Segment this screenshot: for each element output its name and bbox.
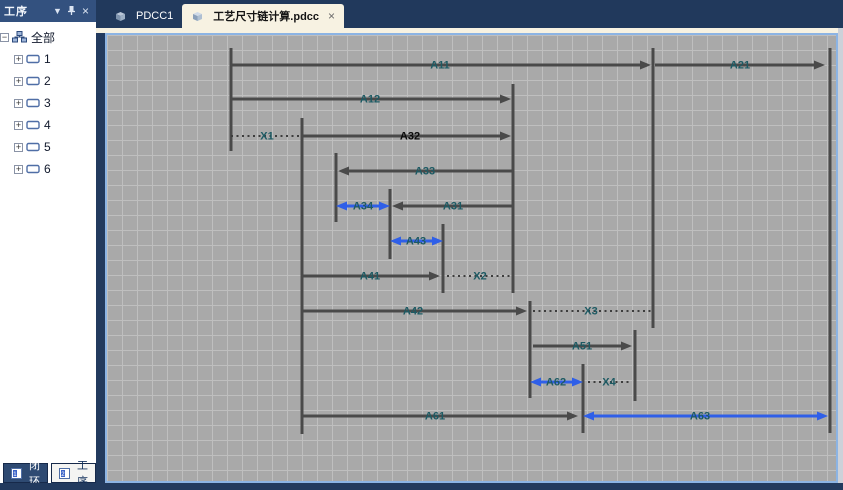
arrowhead-icon (516, 307, 527, 316)
dimension-label: A51 (572, 341, 592, 353)
dimension-label: A63 (690, 411, 710, 423)
operations-tree: −全部+1+2+3+4+5+6 (0, 26, 96, 180)
tab-label: PDCC1 (136, 10, 173, 22)
dimension-label: A33 (415, 166, 435, 178)
arrowhead-icon (338, 167, 349, 176)
close-panel-icon[interactable]: × (79, 4, 92, 18)
arrowhead-icon (390, 237, 401, 246)
operation-icon (26, 142, 40, 152)
dimension-chain-canvas[interactable]: A11A21A12X1A32A33A34A31A43A41X2A42X3A51A… (107, 35, 836, 481)
pin-icon[interactable] (65, 5, 78, 18)
expand-icon[interactable]: + (14, 121, 23, 130)
sidebar-bottom-tabs: 1 闭环 2 工序 (3, 463, 96, 483)
tree-item-label: 1 (44, 52, 51, 66)
arrowhead-icon (530, 378, 541, 387)
dimension-A21[interactable]: A21 (655, 60, 825, 72)
dimension-label: A21 (730, 60, 750, 72)
dimension-label: A12 (360, 94, 380, 106)
tree-item-label: 3 (44, 96, 51, 110)
tree-item-label: 6 (44, 162, 51, 176)
operation-icon (26, 54, 40, 64)
chevron-down-icon[interactable]: ▼ (51, 6, 64, 16)
arrowhead-icon (500, 132, 511, 141)
dimension-A34[interactable]: A34 (336, 201, 390, 213)
tree-item-operation-3[interactable]: +3 (0, 92, 96, 114)
dimension-A12[interactable]: A12 (231, 94, 511, 106)
dimension-A41[interactable]: A41 (302, 271, 440, 283)
dimension-label: A61 (425, 411, 445, 423)
sidebar-title: 工序 (4, 3, 50, 19)
arrowhead-icon (392, 202, 403, 211)
expand-icon[interactable]: + (14, 143, 23, 152)
dimension-A42[interactable]: A42 (302, 306, 527, 318)
operation-icon (26, 120, 40, 130)
tree-item-operation-2[interactable]: +2 (0, 70, 96, 92)
collapse-icon[interactable]: − (0, 33, 9, 42)
operation-tab-icon: 2 (59, 468, 70, 479)
operation-icon (26, 98, 40, 108)
dimension-A33[interactable]: A33 (338, 166, 513, 178)
dimension-A61[interactable]: A61 (302, 411, 578, 423)
tab-label: 工艺尺寸链计算.pdcc (213, 8, 319, 24)
dimension-label: X1 (260, 131, 273, 143)
close-tab-icon[interactable]: × (328, 9, 335, 23)
expand-icon[interactable]: + (14, 165, 23, 174)
canvas-right-edge (838, 28, 843, 483)
dimension-label: A62 (546, 377, 566, 389)
pdcc-document-icon (191, 10, 204, 22)
dimension-X3[interactable]: X3 (533, 306, 652, 318)
dimension-A32[interactable]: A32 (302, 131, 511, 143)
pdcc-document-icon (114, 10, 127, 22)
dimension-label: X2 (473, 271, 486, 283)
loop-tab-icon: 1 (11, 468, 22, 479)
operations-sidebar: 工序 ▼ × −全部+1+2+3+4+5+6 1 闭环 2 工序 (0, 0, 96, 483)
dimension-label: X4 (602, 377, 616, 389)
arrowhead-icon (640, 61, 651, 70)
operation-icon (26, 164, 40, 174)
sidebar-titlebar: 工序 ▼ × (0, 0, 96, 22)
arrowhead-icon (567, 412, 578, 421)
expand-icon[interactable]: + (14, 77, 23, 86)
org-chart-icon (12, 31, 27, 43)
dimension-A62[interactable]: A62 (530, 377, 583, 389)
tree-root-all[interactable]: −全部 (0, 26, 96, 48)
dimension-label: X3 (584, 306, 597, 318)
tree-item-label: 5 (44, 140, 51, 154)
dimension-A31[interactable]: A31 (392, 201, 513, 213)
tree-item-label: 2 (44, 74, 51, 88)
tab-closed-loop[interactable]: 1 闭环 (3, 463, 48, 483)
arrowhead-icon (429, 272, 440, 281)
arrowhead-icon (336, 202, 347, 211)
tab-pdcc1[interactable]: PDCC1 (105, 4, 182, 28)
dimension-X1[interactable]: X1 (231, 131, 302, 143)
arrowhead-icon (583, 412, 594, 421)
dimension-label: A31 (443, 201, 463, 213)
arrowhead-icon (817, 412, 828, 421)
operation-icon (26, 76, 40, 86)
status-bar (0, 483, 843, 490)
app-window: PDCC1 工艺尺寸链计算.pdcc × A11A21A12X1A32A33A3… (0, 0, 843, 490)
dimension-label: A11 (430, 60, 450, 72)
dimension-label: A34 (353, 201, 374, 213)
arrowhead-icon (572, 378, 583, 387)
dimension-A11[interactable]: A11 (231, 60, 651, 72)
dimension-X4[interactable]: X4 (588, 377, 632, 389)
tab-process-chain-doc[interactable]: 工艺尺寸链计算.pdcc × (182, 4, 344, 28)
tree-item-label: 全部 (31, 29, 55, 46)
tree-item-operation-5[interactable]: +5 (0, 136, 96, 158)
tree-item-label: 4 (44, 118, 51, 132)
tree-item-operation-6[interactable]: +6 (0, 158, 96, 180)
tab-operations[interactable]: 2 工序 (51, 463, 96, 483)
expand-icon[interactable]: + (14, 99, 23, 108)
tree-item-operation-4[interactable]: +4 (0, 114, 96, 136)
dimension-A51[interactable]: A51 (533, 341, 632, 353)
dimension-label: A42 (403, 306, 423, 318)
dimension-label: A43 (406, 236, 426, 248)
tree-item-operation-1[interactable]: +1 (0, 48, 96, 70)
dimension-label: A32 (400, 131, 420, 143)
expand-icon[interactable]: + (14, 55, 23, 64)
document-tabstrip: PDCC1 工艺尺寸链计算.pdcc × (96, 0, 843, 28)
dimension-label: A41 (360, 271, 380, 283)
arrowhead-icon (432, 237, 443, 246)
arrowhead-icon (379, 202, 390, 211)
dimension-X2[interactable]: X2 (447, 271, 512, 283)
arrowhead-icon (500, 95, 511, 104)
dimension-A43[interactable]: A43 (390, 236, 443, 248)
arrowhead-icon (814, 61, 825, 70)
arrowhead-icon (621, 342, 632, 351)
dimension-A63[interactable]: A63 (583, 411, 828, 423)
diagram-canvas-frame: A11A21A12X1A32A33A34A31A43A41X2A42X3A51A… (105, 33, 838, 483)
